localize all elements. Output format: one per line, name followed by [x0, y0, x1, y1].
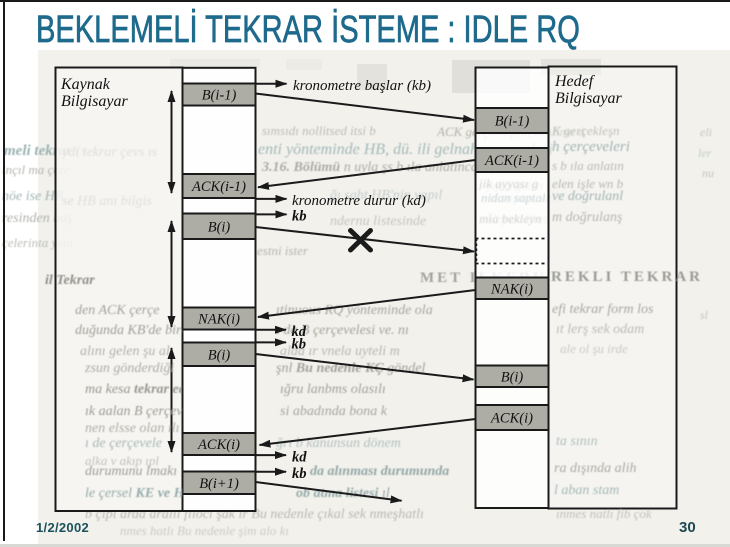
svg-text:B(i): B(i) [208, 220, 231, 236]
svg-text:ACK(i): ACK(i) [197, 437, 240, 453]
svg-text:Kaynak: Kaynak [60, 76, 111, 93]
svg-text:kb: kb [292, 466, 307, 482]
svg-text:B(i): B(i) [501, 370, 524, 386]
svg-text:Bilgisayar: Bilgisayar [61, 93, 128, 110]
svg-text:B(i+1): B(i+1) [199, 476, 239, 492]
svg-text:B(i-1): B(i-1) [202, 88, 237, 104]
svg-text:NAK(i): NAK(i) [197, 312, 240, 328]
svg-text:kronometre başlar (kb): kronometre başlar (kb) [293, 78, 431, 94]
svg-text:kronometre durur (kd): kronometre durur (kd) [292, 193, 426, 209]
svg-text:ACK(i): ACK(i) [490, 411, 533, 427]
svg-text:kb: kb [292, 337, 307, 353]
svg-text:kb: kb [292, 209, 307, 225]
svg-text:Bilgisayar: Bilgisayar [555, 90, 622, 107]
svg-text:B(i): B(i) [208, 348, 231, 364]
svg-text:NAK(i): NAK(i) [490, 282, 533, 298]
svg-text:B(i-1): B(i-1) [495, 114, 530, 130]
svg-text:kd: kd [292, 450, 307, 466]
svg-text:ACK(i-1): ACK(i-1) [484, 153, 539, 169]
svg-text:ACK(i-1): ACK(i-1) [191, 179, 246, 195]
svg-text:Hedef: Hedef [554, 73, 596, 90]
